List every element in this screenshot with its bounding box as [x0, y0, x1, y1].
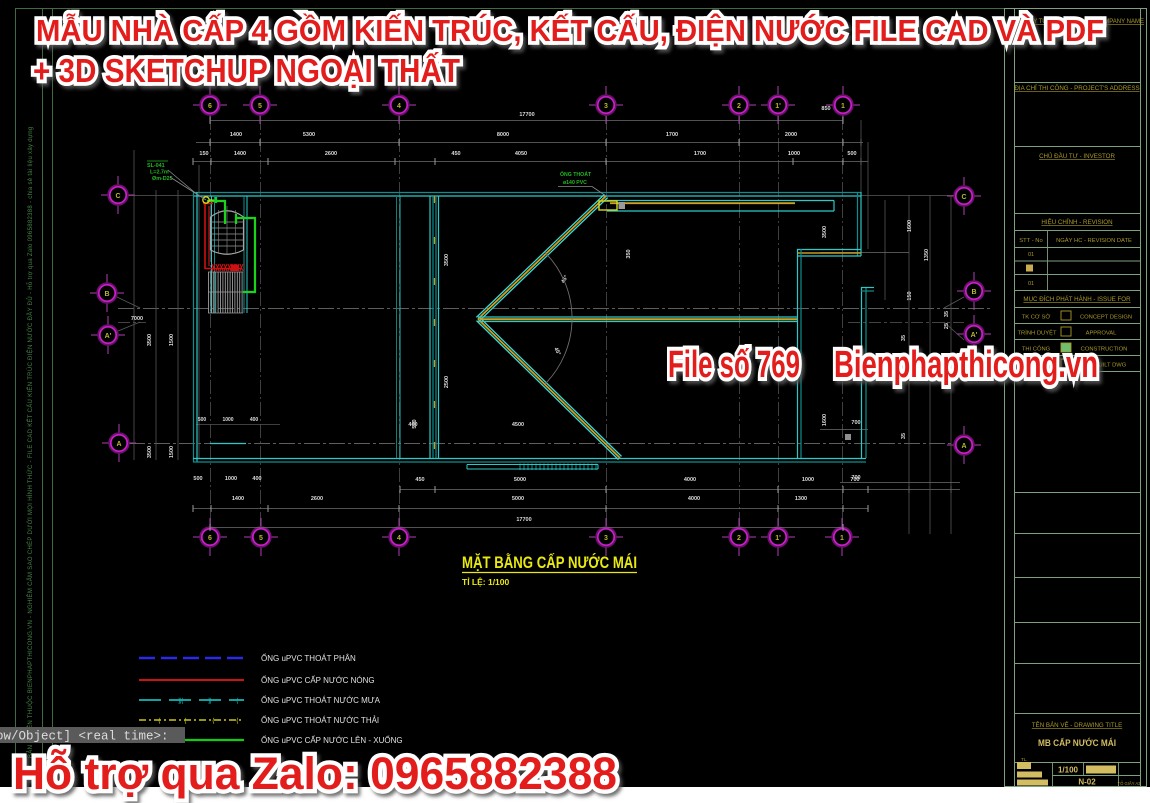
svg-text:450: 450	[451, 151, 460, 157]
svg-text:4500: 4500	[512, 422, 524, 428]
svg-text:1400: 1400	[230, 132, 242, 138]
svg-text:8000: 8000	[497, 132, 509, 138]
svg-text:1700: 1700	[694, 151, 706, 157]
svg-text:2500: 2500	[444, 376, 450, 388]
svg-text:A': A'	[971, 332, 978, 339]
svg-text:C: C	[961, 194, 966, 201]
svg-text:500: 500	[412, 419, 418, 428]
svg-text:NGÀY HC - REVISION DATE: NGÀY HC - REVISION DATE	[1056, 237, 1132, 244]
svg-text:17700: 17700	[516, 517, 531, 523]
svg-text:4: 4	[397, 535, 401, 542]
svg-text:4000: 4000	[688, 496, 700, 502]
svg-text:3500: 3500	[444, 254, 450, 266]
svg-text:TK CƠ SỞ: TK CƠ SỞ	[1022, 314, 1051, 321]
svg-text:2: 2	[737, 103, 741, 110]
svg-text:File số 769: File số 769	[668, 344, 800, 386]
svg-text:ĐỊA CHỈ THI CÔNG - PROJECT'S A: ĐỊA CHỈ THI CÔNG - PROJECT'S ADDRESS	[1014, 85, 1139, 92]
svg-text:STT - No: STT - No	[1019, 238, 1042, 244]
svg-text:450: 450	[415, 477, 424, 483]
svg-text:Øm-D25: Øm-D25	[152, 176, 173, 182]
svg-text:TRÌNH DUYỆT: TRÌNH DUYỆT	[1018, 329, 1057, 337]
svg-text:5000: 5000	[512, 496, 524, 502]
svg-text:700: 700	[851, 420, 860, 426]
svg-text:TỐ GIẤY A3: TỐ GIẤY A3	[1118, 781, 1142, 786]
svg-text:HIỆU CHỈNH - REVISION: HIỆU CHỈNH - REVISION	[1041, 218, 1112, 226]
svg-text:2000: 2000	[785, 132, 797, 138]
svg-text:2: 2	[737, 535, 741, 542]
svg-text:3500: 3500	[822, 226, 828, 238]
svg-text:⟨: ⟨	[158, 717, 161, 725]
svg-text:5: 5	[258, 103, 262, 110]
svg-text:150: 150	[199, 151, 208, 157]
svg-text:MẪU NHÀ CẤP 4 GỒM KIẾN TRÚC, K: MẪU NHÀ CẤP 4 GỒM KIẾN TRÚC, KẾT CẤU, ĐI…	[36, 12, 1104, 48]
svg-text:35: 35	[944, 311, 950, 317]
svg-text:5000: 5000	[514, 477, 526, 483]
svg-text:1000: 1000	[802, 477, 814, 483]
svg-text:⟨: ⟨	[181, 697, 184, 705]
svg-text:6: 6	[208, 535, 212, 542]
svg-text:APPROVAL: APPROVAL	[1086, 331, 1118, 337]
svg-text:2600: 2600	[325, 151, 337, 157]
svg-text:1350: 1350	[924, 249, 930, 261]
svg-text:B: B	[971, 289, 976, 296]
svg-text:1000: 1000	[225, 476, 237, 482]
svg-text:MẶT BẰNG CẤP NƯỚC MÁI: MẶT BẰNG CẤP NƯỚC MÁI	[462, 553, 637, 572]
svg-text:+ 3D SKETCHUP NGOẠI THẤT: + 3D SKETCHUP NGOẠI THẤT	[33, 52, 460, 89]
svg-text:Bienphapthicong.vn: Bienphapthicong.vn	[834, 344, 1098, 386]
svg-text:1': 1'	[775, 535, 781, 542]
svg-text:ỐNG uPVC THOÁT NƯỚC MƯA: ỐNG uPVC THOÁT NƯỚC MƯA	[261, 695, 381, 705]
svg-text:4050: 4050	[515, 151, 527, 157]
svg-text:ow/Object] <real time>:: ow/Object] <real time>:	[0, 730, 169, 744]
svg-text:850: 850	[821, 106, 830, 112]
svg-text:500: 500	[193, 476, 202, 482]
svg-text:⟨: ⟨	[184, 717, 187, 725]
svg-text:A: A	[961, 443, 966, 450]
svg-text:A': A'	[105, 333, 112, 340]
svg-text:⟫: ⟫	[208, 697, 212, 705]
svg-text:4: 4	[397, 103, 401, 110]
svg-text:ỐNG uPVC CẤP NƯỚC LÊN - XUỐNG: ỐNG uPVC CẤP NƯỚC LÊN - XUỐNG	[261, 735, 403, 745]
svg-text:400: 400	[250, 417, 259, 423]
svg-text:1400: 1400	[232, 496, 244, 502]
svg-text:1300: 1300	[795, 496, 807, 502]
svg-text:150: 150	[907, 291, 913, 300]
svg-text:1: 1	[841, 103, 845, 110]
svg-text:1': 1'	[775, 103, 781, 110]
svg-text:1600: 1600	[822, 414, 828, 426]
svg-text:ỐNG uPVC CẤP NƯỚC NÓNG: ỐNG uPVC CẤP NƯỚC NÓNG	[261, 675, 375, 685]
svg-text:ỐNG uPVC THOÁT NƯỚC THẢI: ỐNG uPVC THOÁT NƯỚC THẢI	[261, 715, 379, 725]
svg-text:1000: 1000	[788, 151, 800, 157]
svg-text:CHỦ ĐẦU TƯ - INVESTOR: CHỦ ĐẦU TƯ - INVESTOR	[1039, 153, 1115, 160]
svg-text:L=2.7m: L=2.7m	[150, 170, 169, 176]
svg-text:01: 01	[1028, 281, 1034, 287]
svg-text:1: 1	[840, 535, 844, 542]
svg-text:1/100: 1/100	[1058, 766, 1079, 775]
svg-text:3500: 3500	[147, 334, 153, 346]
svg-text:1700: 1700	[666, 132, 678, 138]
svg-text:350: 350	[626, 249, 632, 258]
svg-text:⟨: ⟨	[212, 717, 215, 725]
svg-text:N-02: N-02	[1078, 778, 1096, 787]
svg-text:400: 400	[252, 476, 261, 482]
svg-text:Hỗ trợ qua Zalo: 0965882388: Hỗ trợ qua Zalo: 0965882388	[13, 748, 617, 799]
svg-text:500: 500	[198, 417, 207, 423]
svg-text:⟨: ⟨	[236, 697, 239, 705]
svg-text:MB CẤP NƯỚC MÁI: MB CẤP NƯỚC MÁI	[1038, 737, 1116, 748]
svg-text:A: A	[116, 441, 121, 448]
svg-text:TỈ LỆ: 1/100: TỈ LỆ: 1/100	[462, 576, 510, 587]
svg-text:3: 3	[604, 535, 608, 542]
svg-text:ø140 PVC: ø140 PVC	[563, 180, 587, 186]
svg-text:4000: 4000	[684, 477, 696, 483]
svg-text:TL.: TL.	[1021, 757, 1028, 762]
svg-text:1500: 1500	[169, 334, 175, 346]
svg-text:ỐNG uPVC THOÁT PHÂN: ỐNG uPVC THOÁT PHÂN	[261, 653, 356, 663]
svg-text:MỤC ĐÍCH PHÁT HÀNH - ISSUE FOR: MỤC ĐÍCH PHÁT HÀNH - ISSUE FOR	[1023, 296, 1131, 303]
svg-text:SL-041: SL-041	[147, 163, 165, 169]
svg-text:25: 25	[944, 323, 950, 329]
svg-text:500: 500	[847, 151, 856, 157]
svg-text:35: 35	[901, 335, 907, 341]
svg-text:ỐNG THOÁT: ỐNG THOÁT	[560, 171, 592, 178]
svg-text:5300: 5300	[303, 132, 315, 138]
svg-text:B: B	[104, 291, 109, 298]
svg-text:7000: 7000	[131, 316, 143, 322]
svg-text:1500: 1500	[169, 446, 175, 458]
svg-text:1600: 1600	[907, 220, 913, 232]
svg-text:5: 5	[259, 535, 263, 542]
svg-text:CONCEPT DESIGN: CONCEPT DESIGN	[1080, 315, 1132, 321]
svg-text:1000: 1000	[222, 417, 233, 423]
svg-text:TÊN BẢN VẺ - DRAWING TITLE: TÊN BẢN VẺ - DRAWING TITLE	[1032, 721, 1122, 729]
svg-text:17700: 17700	[519, 112, 534, 118]
svg-text:1400: 1400	[234, 151, 246, 157]
svg-text:35: 35	[901, 433, 907, 439]
svg-text:⟨: ⟨	[236, 717, 239, 725]
svg-text:3500: 3500	[147, 446, 153, 458]
svg-text:C: C	[115, 193, 120, 200]
svg-text:3: 3	[604, 103, 608, 110]
svg-text:2600: 2600	[311, 496, 323, 502]
svg-text:6: 6	[208, 103, 212, 110]
svg-text:01: 01	[1028, 252, 1034, 258]
svg-text:700: 700	[851, 475, 860, 481]
svg-text:BẢN QUYỀN THUỘC BIENPHAPTHICON: BẢN QUYỀN THUỘC BIENPHAPTHICONG.VN - NGH…	[26, 127, 34, 758]
